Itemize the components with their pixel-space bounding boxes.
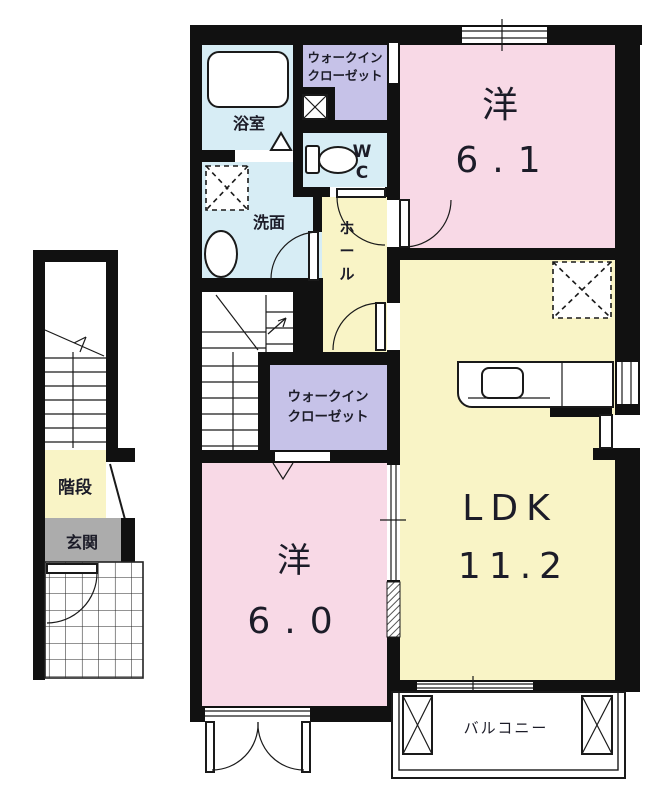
wic-mid-line2: クローゼット <box>288 408 369 425</box>
service-door <box>600 415 640 448</box>
wic-top-line1: ウォークイン <box>307 50 382 65</box>
balcony-label: バルコニー <box>464 719 549 737</box>
closet-opening <box>389 43 398 83</box>
entrance-porch <box>45 562 143 678</box>
kitchen-sink <box>482 368 523 398</box>
kitchen-window <box>617 362 638 404</box>
ldk-size: 11.2 <box>458 546 570 587</box>
hall-label: ホール <box>339 219 354 283</box>
ldk-name: LDK <box>462 488 557 529</box>
kitchen-counter <box>458 362 613 407</box>
washroom-label: 洗面 <box>253 213 285 232</box>
stairs-1f <box>45 330 106 448</box>
wic-mid-line1: ウォークイン <box>288 389 369 405</box>
stair-block-wall-top <box>33 250 118 262</box>
walk-in-closet-middle <box>270 365 387 450</box>
toilet <box>306 146 357 173</box>
pipe-space <box>303 95 327 119</box>
bedroom-6-1-size: 6.1 <box>455 140 554 181</box>
bedroom-6-0-name: 洋 <box>277 541 311 581</box>
balcony-panel-right <box>582 696 612 754</box>
bedroom-6-1-name: 洋 <box>482 85 518 126</box>
entrance-label: 玄関 <box>66 533 98 552</box>
stair-block-wall-left <box>33 250 45 680</box>
floorplan-canvas: 階段 玄関 <box>0 0 657 800</box>
stairs-label: 階段 <box>58 477 92 498</box>
bedroom-6-0-doors <box>205 708 310 772</box>
genkan-wall-right <box>121 518 135 562</box>
washbasin <box>205 231 237 277</box>
wic-top-line2: クローゼット <box>307 68 382 83</box>
entrance-door-leaf <box>47 564 97 573</box>
refrigerator-space <box>553 262 611 318</box>
balcony: バルコニー <box>392 692 625 778</box>
room-bedroom-6-0 <box>202 462 387 706</box>
room-ldk <box>398 260 615 680</box>
bath-label: 浴室 <box>233 114 265 133</box>
bathtub <box>208 52 288 107</box>
bedroom-6-0-size: 6.0 <box>247 601 346 642</box>
stair-block: 階段 玄関 <box>33 250 143 680</box>
main-unit: バルコニー 浴室 洗面 WC ホール ウォークイン クローゼット ウォークイン … <box>190 19 642 778</box>
balcony-panel-left <box>403 696 432 754</box>
stair-block-wall-right <box>106 250 118 462</box>
stair-block-wall-stub <box>106 448 135 462</box>
washing-machine-space <box>206 166 248 210</box>
floorplan-svg: 階段 玄関 <box>0 0 657 800</box>
